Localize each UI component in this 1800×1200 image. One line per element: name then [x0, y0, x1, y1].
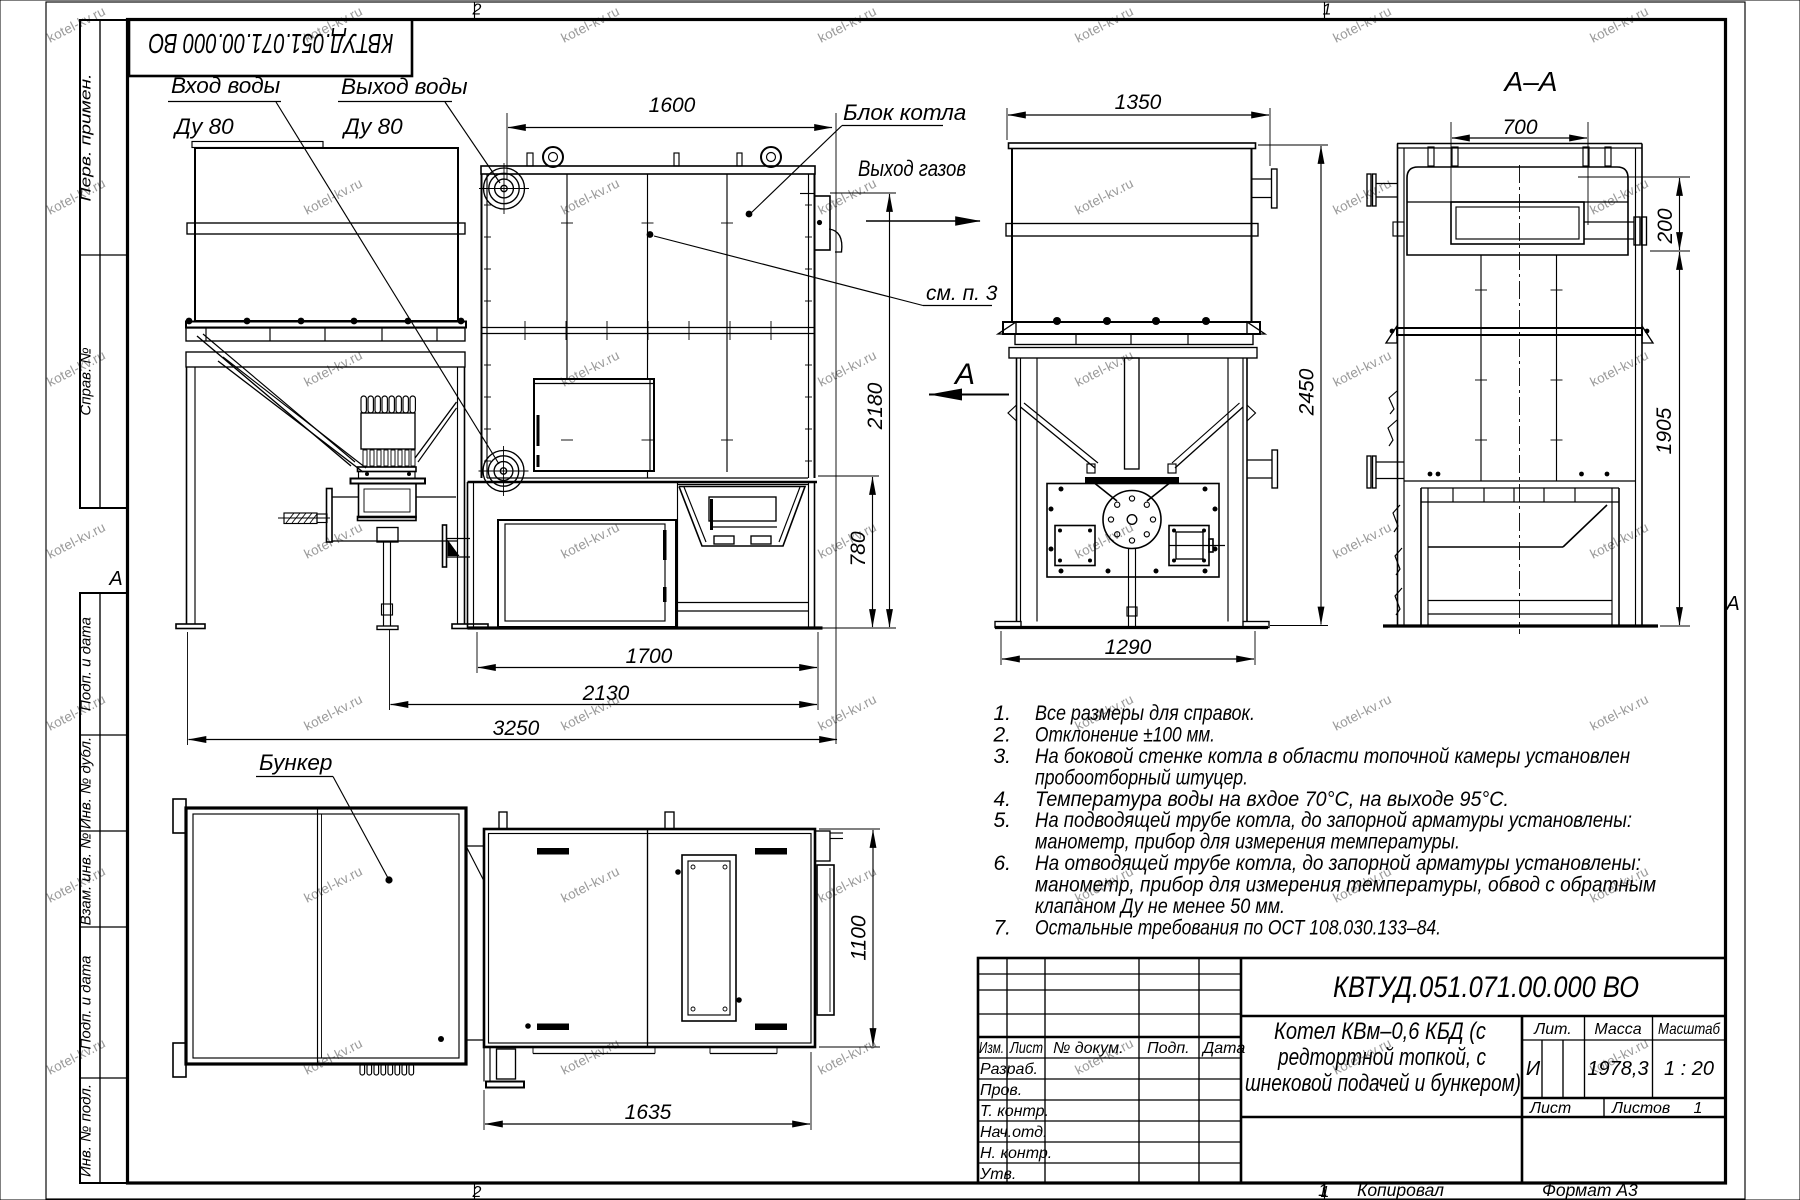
svg-text:kotel-kv.ru: kotel-kv.ru: [816, 863, 879, 905]
svg-text:Разраб.: Разраб.: [980, 1061, 1038, 1078]
svg-text:3.: 3.: [993, 745, 1011, 768]
svg-text:Инв. № дубл.: Инв. № дубл.: [78, 737, 95, 829]
svg-text:kotel-kv.ru: kotel-kv.ru: [559, 863, 622, 905]
svg-text:А–А: А–А: [1503, 66, 1558, 97]
svg-text:Лит.: Лит.: [1533, 1021, 1571, 1038]
svg-text:kotel-kv.ru: kotel-kv.ru: [302, 691, 365, 733]
svg-text:kotel-kv.ru: kotel-kv.ru: [45, 1035, 108, 1077]
svg-text:Дата: Дата: [1201, 1040, 1245, 1057]
svg-text:КВТУД.051.071.00.000 ВО: КВТУД.051.071.00.000 ВО: [149, 28, 394, 59]
svg-text:№ докум.: № докум.: [1053, 1040, 1123, 1057]
svg-text:1: 1: [1694, 1100, 1703, 1117]
svg-text:Изм.: Изм.: [979, 1040, 1004, 1057]
svg-text:kotel-kv.ru: kotel-kv.ru: [302, 347, 365, 389]
svg-text:Копировал: Копировал: [1357, 1180, 1444, 1200]
svg-text:1978,3: 1978,3: [1587, 1058, 1648, 1080]
svg-text:Подп.: Подп.: [1147, 1040, 1190, 1057]
svg-text:Котел КВм–0,6 КБД (с: Котел КВм–0,6 КБД (с: [1274, 1018, 1486, 1045]
svg-text:Блок котла: Блок котла: [843, 100, 966, 125]
svg-text:редтортной топкой, с: редтортной топкой, с: [1277, 1044, 1486, 1071]
svg-text:Перв. примен.: Перв. примен.: [78, 74, 95, 202]
svg-text:200: 200: [1654, 208, 1677, 244]
svg-text:kotel-kv.ru: kotel-kv.ru: [1588, 691, 1651, 733]
svg-text:Все размеры для справок.: Все размеры для справок.: [1035, 702, 1255, 725]
svg-text:Подп. и дата: Подп. и дата: [78, 956, 95, 1050]
svg-text:kotel-kv.ru: kotel-kv.ru: [1331, 347, 1394, 389]
svg-text:1350: 1350: [1115, 91, 1162, 114]
svg-text:Ду 80: Ду 80: [172, 114, 234, 139]
svg-text:1700: 1700: [626, 645, 673, 668]
svg-text:А: А: [1725, 593, 1739, 615]
svg-text:Нач.отд.: Нач.отд.: [980, 1124, 1047, 1141]
svg-text:Температура воды на вхдое 70°С: Температура воды на вхдое 70°С, на выход…: [1035, 788, 1509, 811]
svg-text:Масштаб: Масштаб: [1658, 1021, 1721, 1038]
svg-text:1100: 1100: [848, 915, 871, 960]
svg-text:Остальные требования по ОСТ 10: Остальные требования по ОСТ 108.030.133–…: [1035, 917, 1441, 940]
svg-text:1: 1: [1323, 2, 1332, 19]
svg-text:1290: 1290: [1105, 636, 1152, 659]
svg-text:kotel-kv.ru: kotel-kv.ru: [45, 519, 108, 561]
svg-text:3250: 3250: [493, 717, 540, 740]
svg-text:пробоотборный штуцер.: пробоотборный штуцер.: [1035, 767, 1248, 790]
svg-text:kotel-kv.ru: kotel-kv.ru: [559, 175, 622, 217]
svg-text:4.: 4.: [993, 788, 1011, 811]
svg-text:kotel-kv.ru: kotel-kv.ru: [816, 691, 879, 733]
svg-text:kotel-kv.ru: kotel-kv.ru: [302, 863, 365, 905]
svg-text:шнековой подачей и бункером): шнековой подачей и бункером): [1245, 1070, 1521, 1097]
svg-text:780: 780: [847, 531, 870, 566]
svg-text:Н. контр.: Н. контр.: [980, 1145, 1052, 1162]
svg-text:1905: 1905: [1653, 407, 1676, 454]
svg-text:1600: 1600: [649, 94, 696, 117]
svg-text:kotel-kv.ru: kotel-kv.ru: [45, 175, 108, 217]
svg-text:Отклонение ±100 мм.: Отклонение ±100 мм.: [1035, 724, 1215, 747]
svg-text:Лист: Лист: [1009, 1040, 1043, 1057]
svg-text:2: 2: [472, 2, 482, 19]
svg-text:2: 2: [472, 1184, 482, 1200]
svg-text:клапаном Ду не менее 50 мм.: клапаном Ду не менее 50 мм.: [1035, 895, 1285, 918]
svg-text:kotel-kv.ru: kotel-kv.ru: [816, 1035, 879, 1077]
svg-text:На боковой стенке котла в обла: На боковой стенке котла в области топочн…: [1035, 745, 1630, 768]
svg-text:kotel-kv.ru: kotel-kv.ru: [302, 1035, 365, 1077]
svg-text:Взам. инв. №: Взам. инв. №: [78, 833, 95, 926]
svg-text:kotel-kv.ru: kotel-kv.ru: [816, 3, 879, 45]
svg-text:kotel-kv.ru: kotel-kv.ru: [559, 1035, 622, 1077]
svg-text:И: И: [1526, 1058, 1541, 1080]
svg-text:КВТУД.051.071.00.000 ВО: КВТУД.051.071.00.000 ВО: [1333, 971, 1639, 1004]
svg-text:kotel-kv.ru: kotel-kv.ru: [45, 691, 108, 733]
svg-text:Выход воды: Выход воды: [341, 74, 468, 99]
svg-text:Т. контр.: Т. контр.: [980, 1103, 1049, 1120]
svg-text:kotel-kv.ru: kotel-kv.ru: [1331, 3, 1394, 45]
svg-text:kotel-kv.ru: kotel-kv.ru: [302, 175, 365, 217]
svg-text:манометр, прибор для измерения: манометр, прибор для измерения температу…: [1035, 874, 1656, 897]
svg-text:kotel-kv.ru: kotel-kv.ru: [45, 863, 108, 905]
svg-text:2450: 2450: [1296, 368, 1319, 416]
svg-text:kotel-kv.ru: kotel-kv.ru: [45, 347, 108, 389]
svg-text:5.: 5.: [993, 809, 1011, 832]
svg-text:kotel-kv.ru: kotel-kv.ru: [1073, 3, 1136, 45]
svg-text:kotel-kv.ru: kotel-kv.ru: [1331, 519, 1394, 561]
svg-text:kotel-kv.ru: kotel-kv.ru: [1073, 175, 1136, 217]
svg-text:Ду 80: Ду 80: [341, 114, 403, 139]
svg-text:6.: 6.: [993, 852, 1011, 875]
svg-text:1: 1: [1318, 1180, 1328, 1200]
svg-text:А: А: [953, 358, 975, 391]
svg-text:2130: 2130: [582, 682, 630, 705]
svg-text:700: 700: [1502, 116, 1537, 139]
svg-text:kotel-kv.ru: kotel-kv.ru: [1331, 691, 1394, 733]
svg-text:На отводящей трубе котла, до з: На отводящей трубе котла, до запорной ар…: [1035, 852, 1641, 875]
svg-text:kotel-kv.ru: kotel-kv.ru: [559, 519, 622, 561]
svg-text:Подп. и дата: Подп. и дата: [78, 617, 95, 711]
svg-text:kotel-kv.ru: kotel-kv.ru: [1588, 3, 1651, 45]
svg-text:1.: 1.: [993, 702, 1011, 725]
svg-text:kotel-kv.ru: kotel-kv.ru: [559, 3, 622, 45]
svg-text:Вход воды: Вход воды: [171, 73, 281, 98]
svg-text:манометр, прибор для измерения: манометр, прибор для измерения температу…: [1035, 831, 1460, 854]
svg-text:Справ. №: Справ. №: [78, 347, 95, 415]
svg-text:Листов: Листов: [1611, 1100, 1670, 1117]
svg-text:Выход газов: Выход газов: [858, 156, 966, 181]
svg-text:Утв.: Утв.: [979, 1166, 1016, 1183]
svg-text:Инв. № подл.: Инв. № подл.: [78, 1084, 95, 1177]
svg-text:7.: 7.: [993, 917, 1011, 940]
svg-text:Пров.: Пров.: [980, 1082, 1022, 1099]
svg-text:2180: 2180: [864, 382, 887, 430]
svg-text:Формат А3: Формат А3: [1542, 1180, 1638, 1200]
svg-text:1 : 20: 1 : 20: [1664, 1058, 1714, 1080]
svg-text:см. п. 3: см. п. 3: [926, 282, 998, 305]
svg-text:kotel-kv.ru: kotel-kv.ru: [1073, 347, 1136, 389]
svg-text:kotel-kv.ru: kotel-kv.ru: [45, 3, 108, 45]
svg-text:Масса: Масса: [1594, 1021, 1641, 1038]
svg-text:Лист: Лист: [1529, 1100, 1571, 1117]
svg-text:Бункер: Бункер: [259, 750, 332, 775]
svg-text:А: А: [108, 568, 122, 590]
svg-text:2.: 2.: [992, 724, 1011, 747]
svg-text:На подводящей трубе котла, до: На подводящей трубе котла, до запорной а…: [1035, 809, 1632, 832]
svg-text:1635: 1635: [625, 1101, 672, 1124]
